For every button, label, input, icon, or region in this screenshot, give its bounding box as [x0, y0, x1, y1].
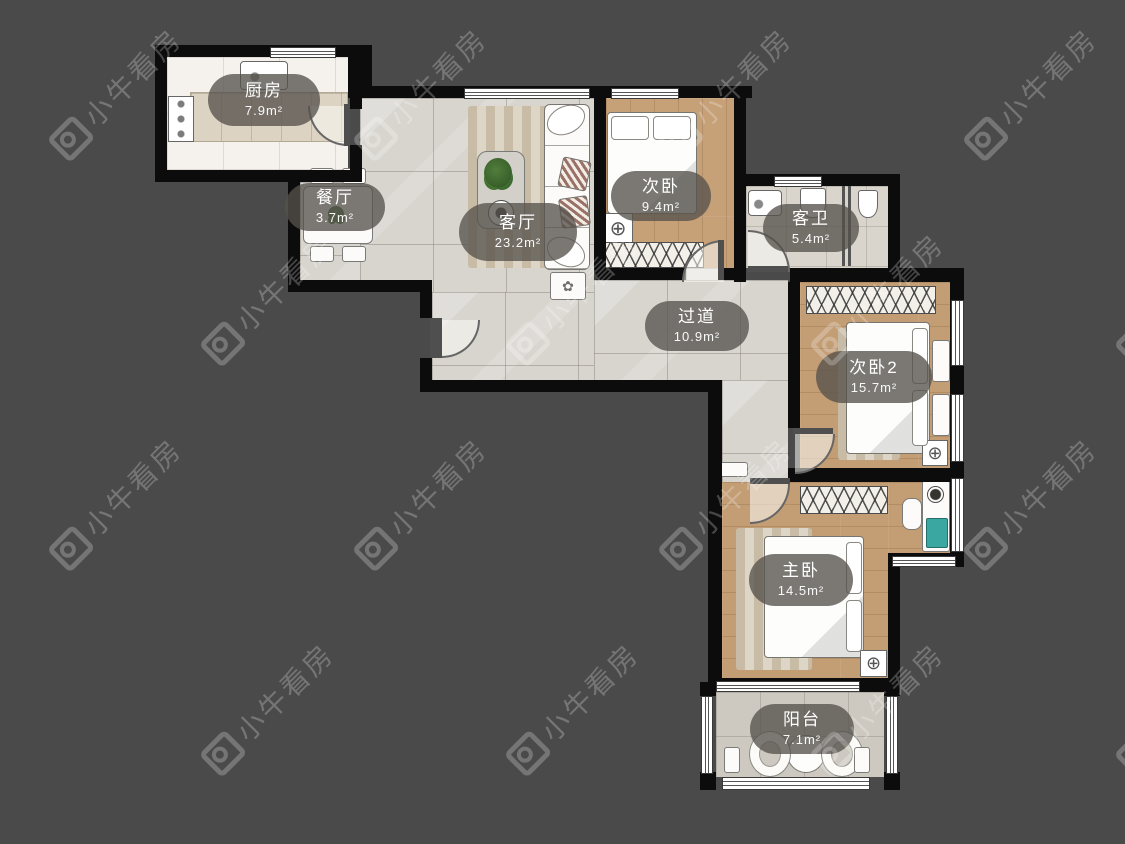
- room-label-bedroom-b: 次卧2 15.7m²: [816, 351, 932, 403]
- watermark-text: 小牛看房: [531, 634, 647, 750]
- room-name: 次卧: [642, 177, 680, 197]
- wall: [788, 468, 962, 482]
- niuniu-logo-icon: [46, 114, 95, 163]
- dining-chair: [310, 246, 334, 262]
- wall: [888, 567, 900, 682]
- room-name: 客厅: [499, 213, 537, 233]
- room-label-balcony: 阳台 7.1m²: [750, 704, 854, 754]
- wall: [350, 98, 362, 109]
- watermark: 小牛看房: [1111, 224, 1125, 370]
- side-table: ✿: [550, 272, 586, 300]
- room-area: 14.5m²: [778, 584, 824, 599]
- room-name: 次卧2: [849, 358, 898, 378]
- pillow: [611, 116, 649, 140]
- wall: [788, 282, 800, 428]
- window: [716, 681, 860, 692]
- room-name: 厨房: [245, 81, 283, 101]
- wall: [700, 682, 716, 696]
- wall: [155, 45, 372, 57]
- balcony-planter: [724, 747, 740, 773]
- floorplan-canvas: ✿ ⊕ ⊕ ⊕: [0, 0, 1125, 844]
- wall: [420, 358, 432, 392]
- wall: [420, 292, 432, 318]
- pillow: [653, 116, 691, 140]
- desk-chair: [902, 498, 922, 530]
- wall: [420, 380, 722, 392]
- room-label-kitchen: 厨房 7.9m²: [208, 74, 320, 126]
- room-label-bathroom: 客卫 5.4m²: [763, 204, 859, 252]
- niuniu-logo-icon: [198, 729, 247, 778]
- wall: [155, 45, 167, 182]
- wall: [594, 268, 686, 280]
- bedroom-b-wardrobe: [806, 286, 936, 314]
- wall: [288, 280, 432, 292]
- window: [270, 47, 336, 58]
- window: [892, 556, 956, 567]
- watermark: 小牛看房: [44, 429, 190, 575]
- room-area: 15.7m²: [851, 381, 897, 396]
- wall: [708, 380, 722, 682]
- niuniu-logo-icon: [198, 319, 247, 368]
- room-label-master: 主卧 14.5m²: [749, 554, 853, 606]
- niuniu-logo-icon: [351, 524, 400, 573]
- watermark-text: 小牛看房: [226, 634, 342, 750]
- dining-chair: [342, 246, 366, 262]
- room-label-dining: 餐厅 3.7m²: [285, 183, 385, 231]
- pillow: [846, 600, 862, 652]
- stove: [168, 96, 194, 142]
- room-area: 7.9m²: [245, 104, 283, 119]
- laptop: [926, 518, 948, 548]
- watermark: 小牛看房: [349, 429, 495, 575]
- room-name: 主卧: [782, 561, 820, 581]
- ottoman: [557, 156, 592, 191]
- niuniu-logo-icon: [1113, 319, 1125, 368]
- window: [886, 696, 898, 774]
- watermark-text: 小牛看房: [989, 429, 1105, 545]
- niuniu-logo-icon: [46, 524, 95, 573]
- bedroom-a-door-leaf: [718, 240, 724, 280]
- coffee-table-plant: [484, 158, 512, 188]
- entry-door-leaf: [430, 318, 442, 358]
- watermark: 小牛看房: [959, 19, 1105, 165]
- wall: [884, 772, 900, 790]
- room-area: 9.4m²: [642, 200, 680, 215]
- room-label-living: 客厅 23.2m²: [459, 203, 577, 261]
- watermark-text: 小牛看房: [74, 429, 190, 545]
- kitchen-door-leaf: [344, 104, 350, 146]
- niuniu-logo-icon: [656, 524, 705, 573]
- desk-lamp: [927, 486, 944, 503]
- bathroom-door-leaf: [748, 266, 788, 272]
- window: [774, 176, 822, 187]
- wall: [700, 772, 716, 790]
- window: [611, 88, 679, 99]
- nightstand: [932, 394, 950, 436]
- room-label-hallway: 过道 10.9m²: [645, 301, 749, 351]
- room-label-bedroom-a: 次卧 9.4m²: [611, 171, 711, 221]
- wall: [594, 98, 606, 280]
- wall: [350, 145, 362, 182]
- window: [951, 300, 964, 366]
- room-name: 客卫: [792, 209, 830, 229]
- watermark-text: 小牛看房: [989, 19, 1105, 135]
- hall-cabinet: [720, 462, 748, 477]
- watermark: 小牛看房: [1111, 634, 1125, 780]
- window: [701, 696, 713, 774]
- floorplan-page: { "watermark": { "text": "小牛看房", "icon":…: [0, 0, 1125, 844]
- window: [951, 394, 964, 462]
- room-name: 过道: [678, 307, 716, 327]
- wall: [155, 170, 362, 182]
- wall: [734, 268, 746, 282]
- master-wardrobe: [800, 486, 888, 514]
- window: [464, 88, 590, 99]
- watermark: 小牛看房: [959, 429, 1105, 575]
- balcony-railing: [722, 777, 870, 790]
- room-name: 阳台: [783, 710, 821, 730]
- room-area: 7.1m²: [783, 733, 821, 748]
- room-area: 23.2m²: [495, 236, 541, 251]
- watermark: 小牛看房: [501, 634, 647, 780]
- nightstand: [932, 340, 950, 382]
- balcony-planter: [854, 747, 870, 773]
- watermark-text: 小牛看房: [379, 429, 495, 545]
- room-name: 餐厅: [316, 188, 354, 208]
- shower-fixture: [858, 190, 878, 218]
- niuniu-logo-icon: [961, 524, 1010, 573]
- wall: [888, 174, 900, 280]
- room-area: 10.9m²: [674, 330, 720, 345]
- watermark: 小牛看房: [196, 634, 342, 780]
- room-area: 3.7m²: [316, 211, 354, 226]
- ceiling-light-icon: ⊕: [860, 650, 887, 677]
- wall: [790, 268, 964, 282]
- niuniu-logo-icon: [961, 114, 1010, 163]
- niuniu-logo-icon: [1113, 729, 1125, 778]
- wall: [884, 682, 900, 696]
- window: [951, 478, 964, 552]
- niuniu-logo-icon: [503, 729, 552, 778]
- flower-icon: ✿: [562, 278, 574, 295]
- room-area: 5.4m²: [792, 232, 830, 247]
